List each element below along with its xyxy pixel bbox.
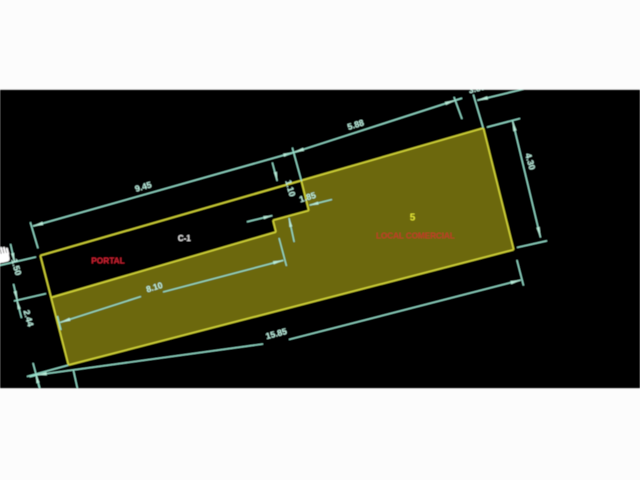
svg-text:C-1: C-1 bbox=[178, 234, 191, 243]
svg-text:PORTAL: PORTAL bbox=[91, 255, 125, 265]
svg-text:5: 5 bbox=[410, 213, 416, 224]
svg-text:LOCAL COMERCIAL: LOCAL COMERCIAL bbox=[376, 231, 455, 241]
